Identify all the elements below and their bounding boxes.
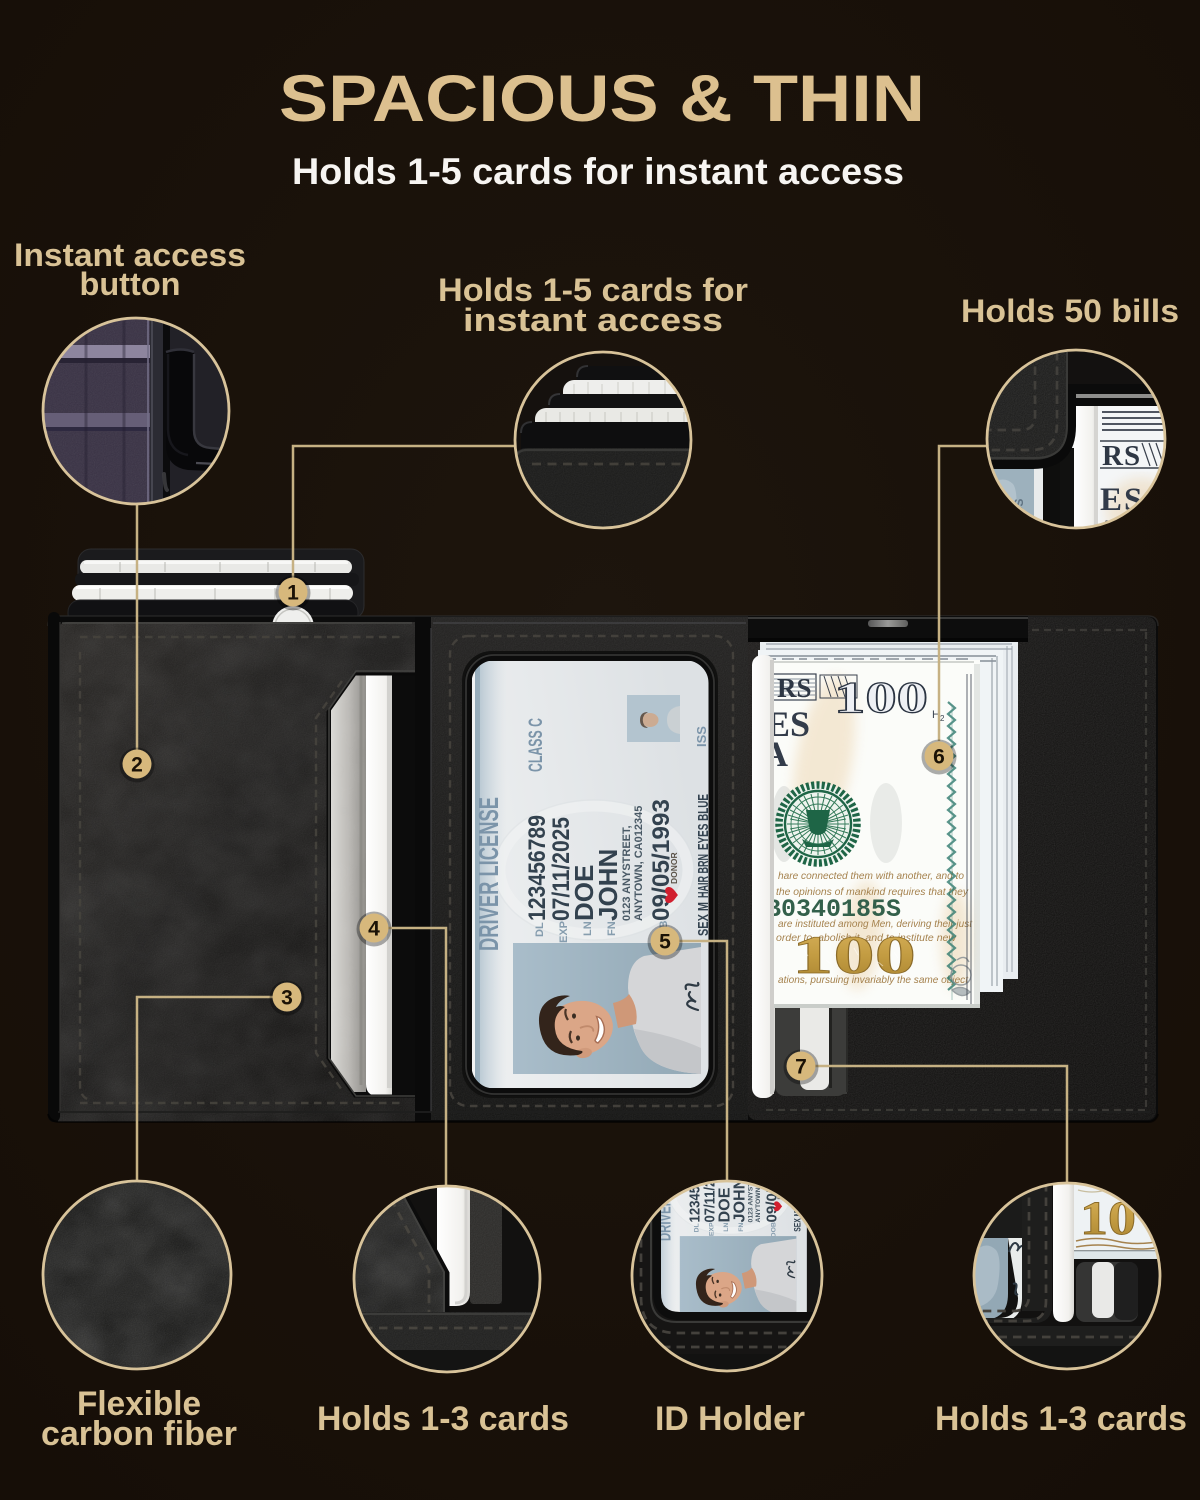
svg-text:4: 4: [368, 918, 380, 941]
svg-text:Holds 1-3 cards: Holds 1-3 cards: [935, 1400, 1187, 1438]
svg-text:B0340185S: B0340185S: [766, 895, 901, 924]
svg-text:instant access: instant access: [463, 302, 723, 338]
svg-text:1: 1: [287, 582, 299, 605]
svg-text:RS: RS: [777, 673, 812, 703]
svg-text:3: 3: [281, 987, 293, 1010]
svg-text:Holds 1-3 cards: Holds 1-3 cards: [317, 1400, 569, 1438]
svg-text:hare connected them with anoth: hare connected them with another, and to: [778, 870, 964, 882]
svg-text:2: 2: [940, 714, 945, 723]
svg-text:100: 100: [792, 925, 916, 985]
svg-text:SPACIOUS & THIN: SPACIOUS & THIN: [279, 61, 925, 135]
svg-text:7: 7: [795, 1056, 807, 1079]
svg-text:6: 6: [933, 746, 945, 769]
svg-text:100: 100: [834, 673, 928, 722]
svg-text:button: button: [80, 266, 181, 302]
svg-text:5: 5: [659, 931, 671, 954]
svg-text:Holds 1-5 cards for instant ac: Holds 1-5 cards for instant access: [292, 151, 904, 192]
svg-text:carbon fiber: carbon fiber: [41, 1415, 237, 1453]
svg-text:RS: RS: [1102, 440, 1141, 472]
svg-text:2: 2: [131, 754, 143, 777]
svg-text:Holds 50 bills: Holds 50 bills: [961, 293, 1179, 329]
svg-text:ID Holder: ID Holder: [655, 1400, 805, 1438]
